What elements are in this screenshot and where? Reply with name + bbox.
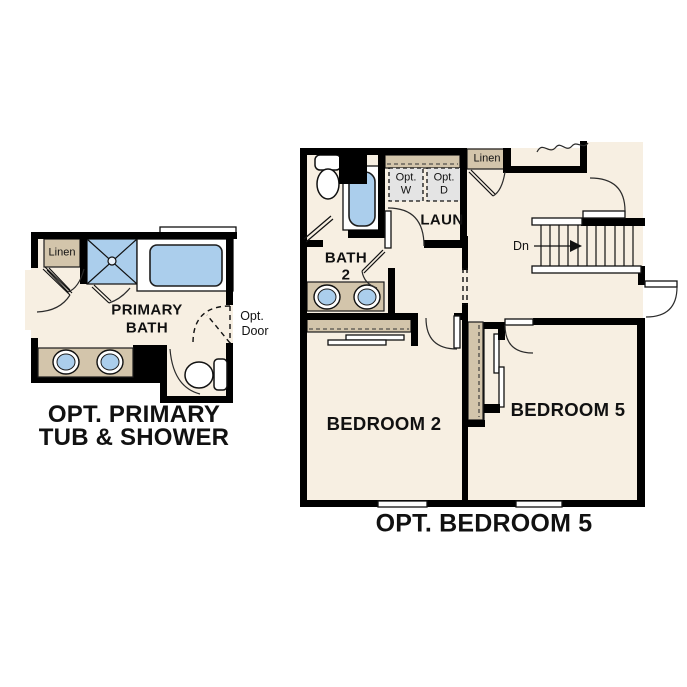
washer-label-line2: W [401, 186, 411, 197]
bedroom5-window [516, 501, 562, 507]
opt-door-label-line1: Opt. [240, 310, 264, 323]
washer-label-line1: Opt. [396, 173, 417, 184]
primary-bath-label-line2: BATH [126, 321, 168, 336]
bypass-door [328, 340, 386, 345]
bedroom2-window [378, 501, 427, 507]
bedroom2-label: BEDROOM 2 [327, 415, 442, 434]
floorplan-canvas: Linen PRIMARY BATH Opt. Door OPT. PRIMAR… [0, 0, 687, 687]
bedroom5-label: BEDROOM 5 [511, 401, 626, 420]
linen-label: Linen [49, 248, 76, 259]
bath2-label-line1: BATH [325, 251, 367, 266]
opt-door-label-line2: Door [241, 325, 268, 338]
bath2-label-line2: 2 [342, 268, 351, 283]
vanity [38, 348, 133, 377]
bypass-door [499, 367, 504, 407]
stairs-dn-label: Dn [513, 240, 529, 253]
left-plan-title-line2: TUB & SHOWER [39, 426, 229, 450]
corridor-door [645, 281, 677, 317]
dryer-label-line1: Opt. [434, 173, 455, 184]
laundry-shelf [385, 155, 460, 168]
entry-floor [25, 270, 33, 330]
cased-opening [461, 268, 469, 305]
toilet2-fixture [315, 155, 341, 199]
tub-fixture [150, 245, 222, 286]
toilet-fixture [185, 359, 227, 390]
floorplan-drawing [0, 0, 687, 687]
laundry-label: LAUN [420, 213, 463, 228]
bypass-door [346, 335, 404, 340]
primary-bath-label-line1: PRIMARY [111, 303, 182, 318]
right-plan-title: OPT. BEDROOM 5 [376, 512, 593, 537]
bedroom5-plan [300, 141, 677, 507]
shower-fixture [87, 239, 137, 284]
dryer-label-line2: D [440, 186, 448, 197]
linen2-label: Linen [474, 154, 501, 165]
